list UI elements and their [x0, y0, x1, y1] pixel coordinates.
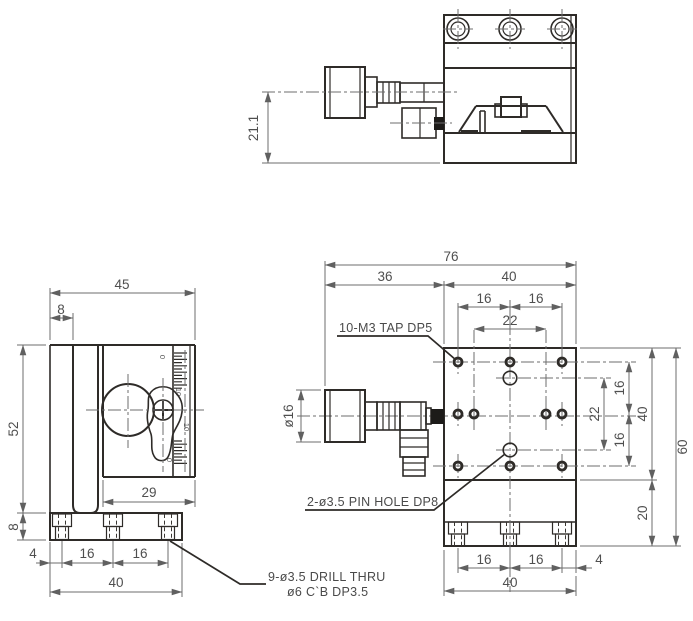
- dim-front-pitch-a: 16: [79, 546, 94, 561]
- lock-screw-side: [390, 108, 452, 138]
- svg-text:10-M3 TAP DP5: 10-M3 TAP DP5: [339, 321, 433, 335]
- svg-text:22: 22: [502, 313, 517, 328]
- dim-plan-plate-depth: 40: [635, 406, 650, 421]
- dovetail-section: [459, 97, 563, 132]
- svg-text:8: 8: [57, 302, 65, 317]
- plan-view: 76 36 40 16 16 22 ø16: [281, 249, 690, 596]
- drill-note-line2: ø6 C`B DP3.5: [287, 585, 368, 599]
- svg-text:76: 76: [443, 249, 458, 264]
- dim-plan-pitch-right-bottom: 16: [612, 432, 627, 447]
- dim-front-overall-width: 45: [50, 277, 195, 340]
- dim-front-base-width: 40: [108, 575, 123, 590]
- dim-plan-edge-bottom: 4: [595, 552, 603, 567]
- dim-side-height-label: 21.1: [246, 115, 261, 141]
- drill-note-line1: 9-ø3.5 DRILL THRU: [268, 570, 386, 584]
- front-base-holes: [53, 514, 178, 540]
- lock-screw-plan: [400, 430, 428, 476]
- dim-plan-pitch-right-top: 16: [612, 380, 627, 395]
- dim-front-top-block-width: 29: [103, 480, 195, 507]
- dim-front-base-thickness: 8: [6, 513, 46, 540]
- dim-plan-plate-width: 40: [501, 269, 516, 284]
- technical-drawing: 21.1 0 10 10 0: [0, 0, 693, 621]
- dim-plan-bottom-chain: 16 16 4 40: [444, 548, 603, 596]
- drawing-sheet: 21.1 0 10 10 0: [0, 0, 693, 621]
- drill-note-leader: [170, 541, 266, 584]
- dim-plan-base-depth: 20: [635, 505, 650, 520]
- dim-front-edge-offset: 4: [29, 546, 37, 561]
- svg-text:2-ø3.5 PIN HOLE DP8: 2-ø3.5 PIN HOLE DP8: [307, 495, 438, 509]
- svg-text:29: 29: [141, 485, 156, 500]
- dim-front-bracket-thickness: 8: [50, 302, 73, 340]
- dim-plan-knob-section: 36: [377, 269, 392, 284]
- side-view: 21.1: [246, 9, 577, 163]
- dim-plan-top-inner-span: 22: [474, 313, 546, 329]
- dim-front-bottom-chain: 4 16 16 40: [29, 541, 182, 597]
- dim-plan-span-right-inner: 22: [587, 406, 602, 421]
- plan-centerlines: [297, 300, 636, 592]
- dim-plan-overall-width: 76: [325, 249, 576, 386]
- svg-text:45: 45: [114, 277, 129, 292]
- dim-plan-pitch-bottom-left: 16: [476, 552, 491, 567]
- svg-text:52: 52: [6, 421, 21, 436]
- dim-front-pitch-b: 16: [132, 546, 147, 561]
- scale-zero-top: 0: [158, 355, 167, 359]
- dim-plan-overall-depth: 60: [675, 439, 690, 454]
- dim-plan-base-width: 40: [502, 575, 517, 590]
- drill-note: 9-ø3.5 DRILL THRU ø6 C`B DP3.5: [268, 570, 386, 599]
- svg-text:8: 8: [6, 523, 21, 531]
- dim-front-column-height: 52: [6, 345, 46, 513]
- front-view: 0 10 10 0 45 8 52: [6, 277, 266, 597]
- dim-plan-pitch-top-left: 16: [476, 291, 491, 306]
- dim-plan-pitch-bottom-right: 16: [528, 552, 543, 567]
- svg-text:ø16: ø16: [281, 404, 296, 427]
- dim-plan-pitch-top-right: 16: [528, 291, 543, 306]
- lever-outline: [147, 387, 182, 461]
- scale-ten-lower: 10: [182, 423, 191, 431]
- callout-tap-holes: 10-M3 TAP DP5: [337, 321, 456, 360]
